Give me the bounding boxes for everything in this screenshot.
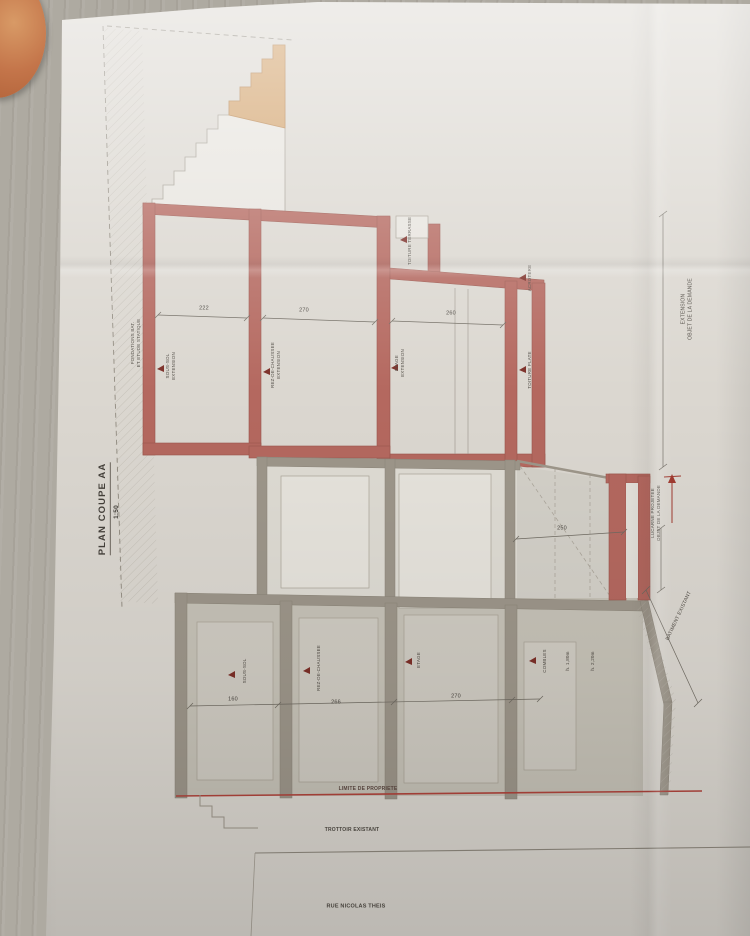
label-limite-propriete: LIMITE DE PROPRIETE xyxy=(339,786,398,793)
stairs-tan-fill xyxy=(229,45,285,128)
label-rue: RUE NICOLAS THEIS xyxy=(326,903,385,910)
label-acrotere: ACROTERE xyxy=(527,265,533,292)
photo-of-architectural-plan: { "titleblock": { "title": "PLAN COUPE A… xyxy=(0,0,750,936)
lucarne-red-arrow xyxy=(664,474,681,523)
drawing-scale: 1:50 xyxy=(113,505,121,519)
label-toiture-terrasse: TOITURE TERRASSE xyxy=(407,217,413,265)
dim-existant-etage: 270 xyxy=(451,693,461,700)
label-toiture-plate: TOITURE PLATE xyxy=(527,351,533,388)
ground-and-street-lines xyxy=(176,791,750,936)
dim-existant-sous-sol: 160 xyxy=(228,696,238,703)
label-trottoir: TROTTOIR EXISTANT xyxy=(325,827,380,834)
extension-interior-lines xyxy=(455,288,468,454)
fold-crease-line xyxy=(251,853,255,936)
label-etage: ETAGE xyxy=(416,652,422,668)
label-sous-sol-extension: SOUS-SOL EXTENSION xyxy=(165,352,177,380)
dim-existant-rdc: 266 xyxy=(331,699,341,706)
dim-extension-sous-sol: 222 xyxy=(199,305,209,312)
lucarne-dormer xyxy=(606,474,650,600)
paper-sheet: PLAN COUPE AA 1:50 FONDATIONS BAT. ET ET… xyxy=(0,0,750,936)
label-rez-de-chaussee: REZ-DE-CHAUSSEE xyxy=(316,645,322,691)
label-rdc-extension: REZ-DE-CHAUSSEE EXTENSION xyxy=(270,342,282,388)
exterior-steps xyxy=(200,795,258,828)
extension-red-walls xyxy=(143,203,545,467)
label-combles: COMBLES xyxy=(542,649,548,672)
label-fondations: FONDATIONS BAT. ET ETUDE STATIQUE xyxy=(130,319,142,368)
label-extension-demande: EXTENSION OBJET DE LA DEMANDE xyxy=(681,278,694,340)
label-etage-extension: ETAGE EXTENSION xyxy=(394,349,406,377)
section-drawing xyxy=(0,0,750,936)
staircase xyxy=(152,45,285,213)
existing-building-fills xyxy=(181,464,643,796)
sidewalk-edge xyxy=(255,847,750,853)
label-sous-sol: SOUS-SOL xyxy=(242,659,248,684)
dim-lucarne: 250 xyxy=(557,525,567,532)
dim-extension-etage: 260 xyxy=(446,310,456,317)
label-hauteur-gauche: h. 1,80m xyxy=(565,651,571,670)
label-hauteur-droite: h. 2,20m xyxy=(590,651,596,670)
dim-extension-rdc: 270 xyxy=(299,307,309,314)
label-lucarne: LUCARNE PROJETEE OBJET DE LA DEMANDE xyxy=(650,485,662,541)
drawing-title: PLAN COUPE AA xyxy=(97,463,111,556)
